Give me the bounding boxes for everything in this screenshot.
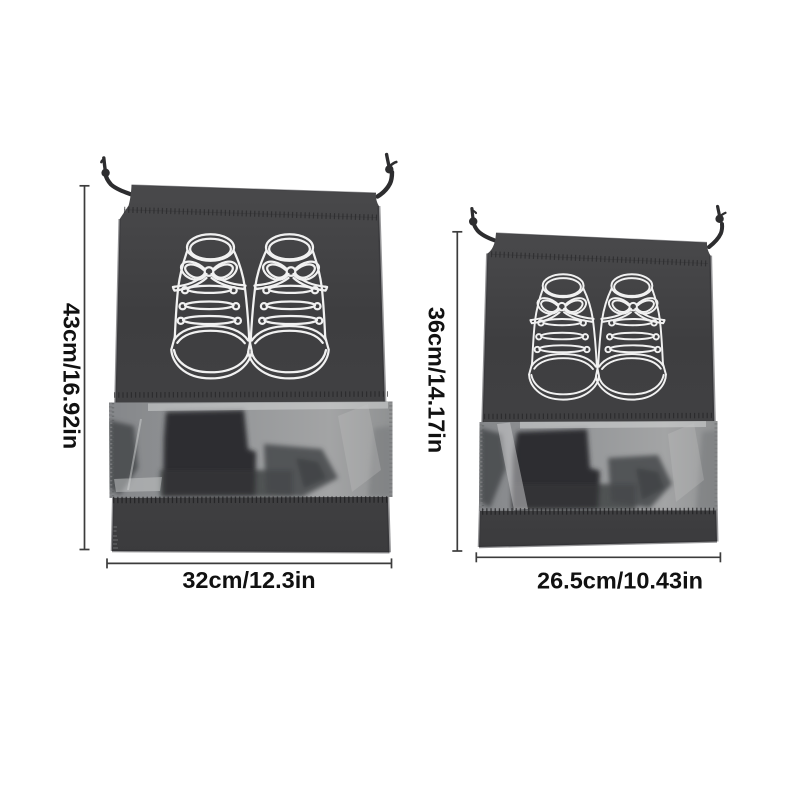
svg-text:36cm/14.17in: 36cm/14.17in [424,307,450,453]
svg-text:32cm/12.3in: 32cm/12.3in [182,567,315,593]
svg-text:43cm/16.92in: 43cm/16.92in [59,303,85,449]
svg-text:26.5cm/10.43in: 26.5cm/10.43in [537,568,703,594]
